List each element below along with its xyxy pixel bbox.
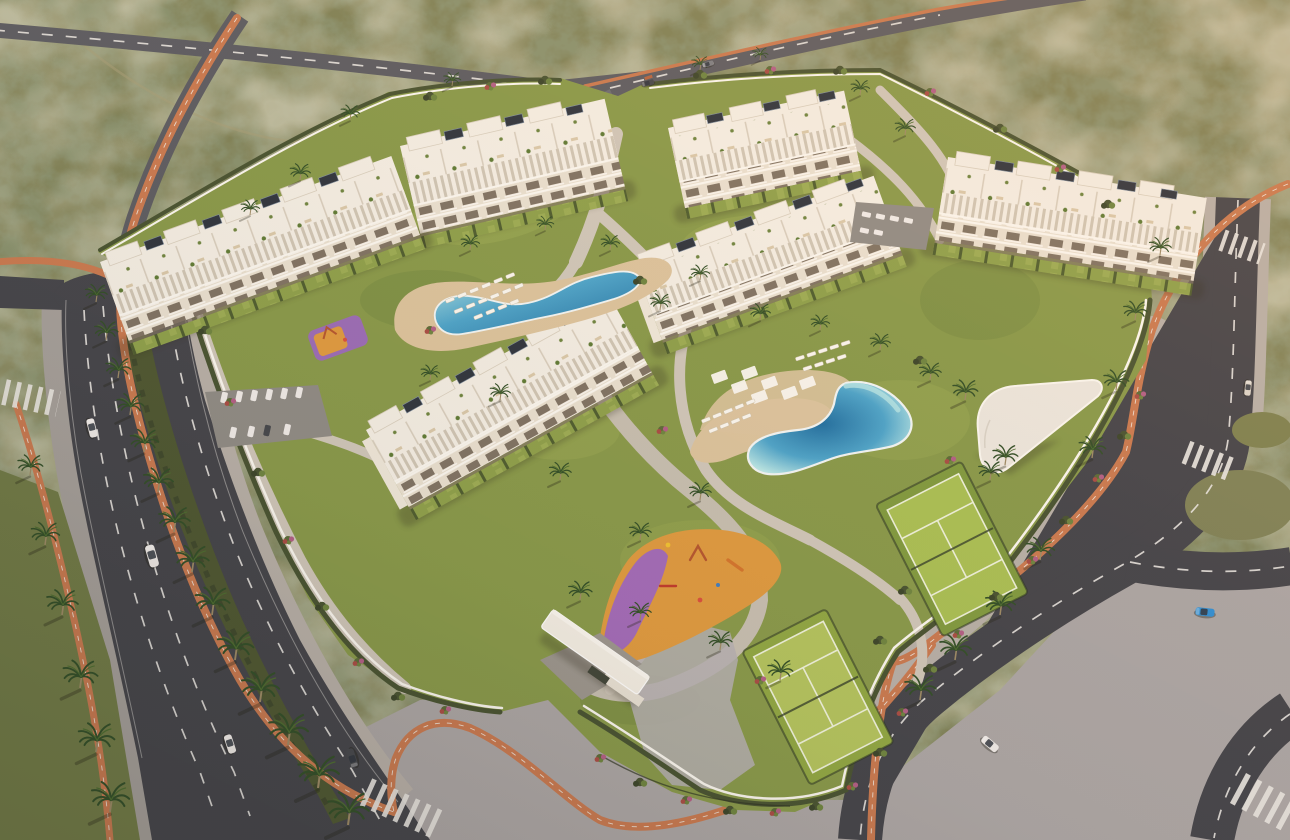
light-overlay bbox=[0, 0, 1290, 840]
aerial-render-canvas bbox=[0, 0, 1290, 840]
aerial-render bbox=[0, 0, 1290, 840]
